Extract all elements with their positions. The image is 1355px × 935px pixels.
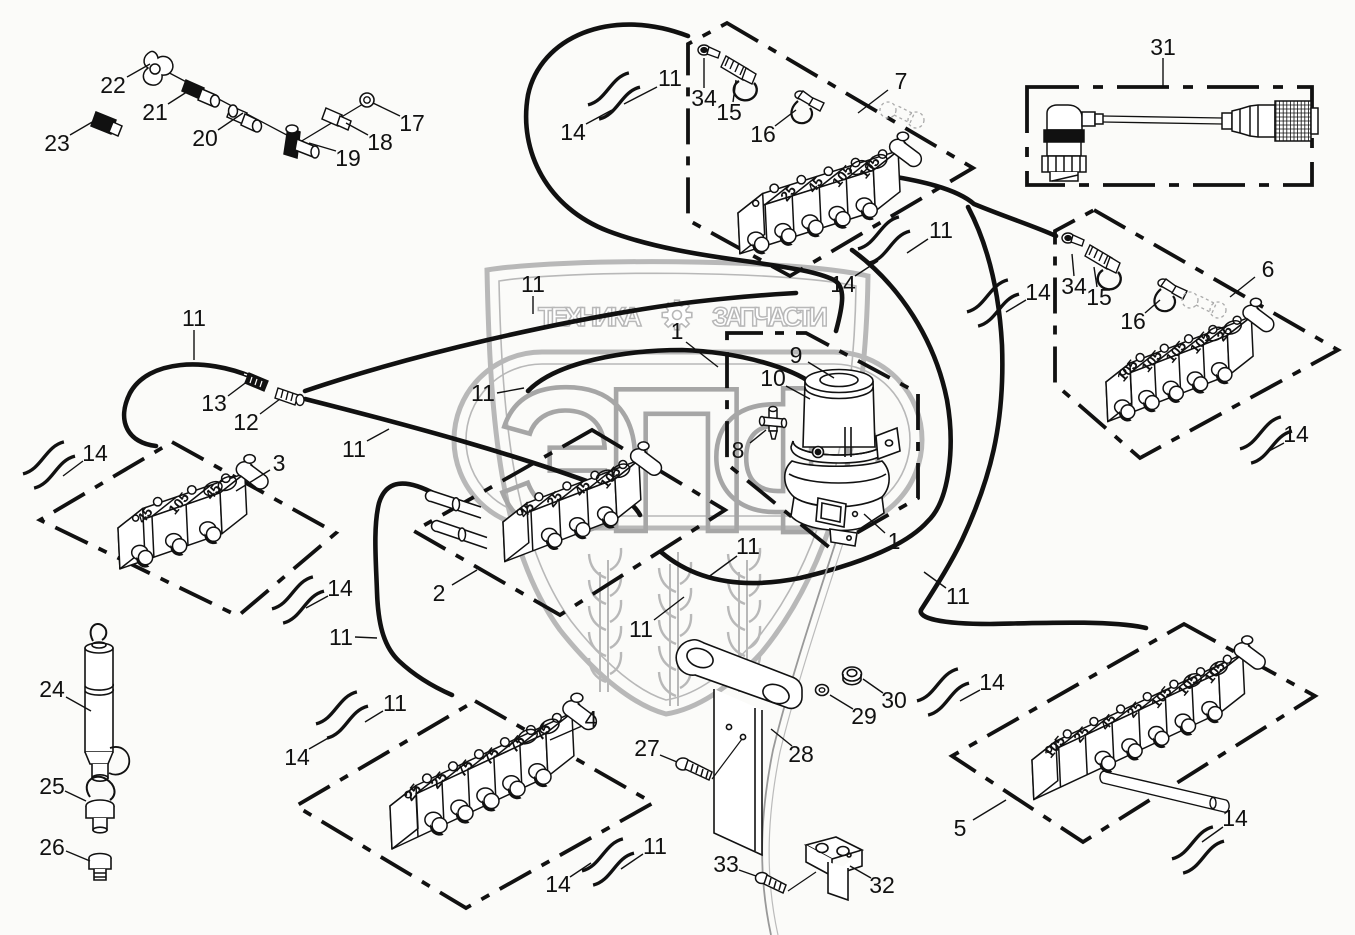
svg-text:16: 16 (750, 121, 776, 147)
svg-text:14: 14 (284, 744, 310, 770)
svg-text:19: 19 (335, 145, 361, 171)
svg-text:24: 24 (39, 676, 65, 702)
svg-text:5: 5 (954, 815, 967, 841)
svg-text:15: 15 (1086, 284, 1112, 310)
svg-text:6: 6 (1262, 256, 1275, 282)
svg-text:30: 30 (881, 687, 907, 713)
svg-text:11: 11 (946, 583, 970, 609)
svg-text:18: 18 (367, 129, 393, 155)
svg-text:1: 1 (671, 318, 684, 344)
svg-text:11: 11 (643, 833, 667, 859)
svg-text:21: 21 (142, 99, 168, 125)
svg-text:8: 8 (732, 437, 745, 463)
svg-text:11: 11 (182, 305, 206, 331)
svg-text:10: 10 (760, 365, 786, 391)
svg-text:11: 11 (658, 65, 682, 91)
svg-text:29: 29 (851, 703, 877, 729)
svg-text:14: 14 (560, 119, 586, 145)
svg-text:9: 9 (790, 342, 803, 368)
svg-text:14: 14 (1283, 421, 1309, 447)
svg-text:22: 22 (100, 72, 126, 98)
svg-text:17: 17 (399, 110, 425, 136)
svg-text:23: 23 (44, 130, 70, 156)
svg-text:13: 13 (201, 390, 227, 416)
svg-text:7: 7 (895, 68, 908, 94)
svg-text:2: 2 (433, 580, 446, 606)
svg-text:33: 33 (713, 851, 739, 877)
svg-text:11: 11 (929, 217, 953, 243)
svg-text:3: 3 (273, 450, 286, 476)
svg-text:14: 14 (1025, 279, 1051, 305)
svg-text:26: 26 (39, 834, 65, 860)
svg-text:27: 27 (634, 735, 660, 761)
svg-text:28: 28 (788, 741, 814, 767)
svg-text:12: 12 (233, 409, 259, 435)
svg-text:14: 14 (979, 669, 1005, 695)
svg-text:25: 25 (39, 773, 65, 799)
svg-text:14: 14 (82, 440, 108, 466)
svg-text:32: 32 (869, 872, 895, 898)
svg-text:ЗАПЧАСТИ: ЗАПЧАСТИ (712, 302, 828, 332)
svg-text:34: 34 (1061, 273, 1087, 299)
svg-text:11: 11 (629, 616, 653, 642)
svg-text:14: 14 (327, 575, 353, 601)
svg-text:16: 16 (1120, 308, 1146, 334)
svg-text:11: 11 (383, 690, 407, 716)
svg-text:34: 34 (691, 85, 717, 111)
svg-text:11: 11 (521, 271, 545, 297)
svg-text:20: 20 (192, 125, 218, 151)
svg-text:11: 11 (471, 380, 495, 406)
svg-text:14: 14 (545, 871, 571, 897)
svg-text:11: 11 (736, 533, 760, 559)
svg-text:14: 14 (830, 271, 856, 297)
svg-text:14: 14 (1222, 805, 1248, 831)
svg-text:31: 31 (1150, 34, 1176, 60)
svg-text:4: 4 (585, 706, 598, 732)
svg-text:15: 15 (716, 99, 742, 125)
svg-text:11: 11 (342, 436, 366, 462)
svg-text:1: 1 (888, 528, 901, 554)
svg-text:11: 11 (329, 624, 353, 650)
